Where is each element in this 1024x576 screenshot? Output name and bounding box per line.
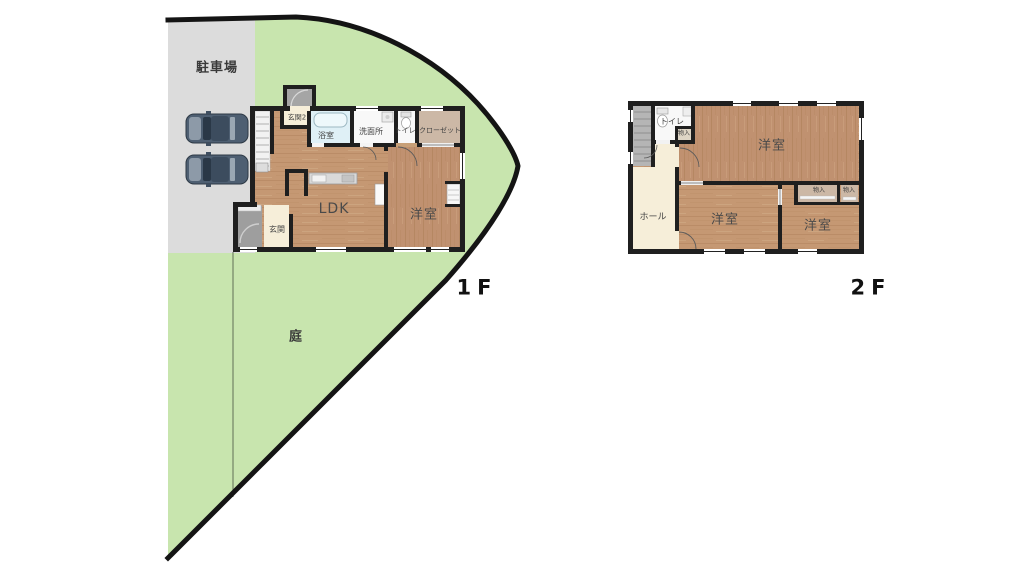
toilet-sink-2f — [683, 107, 692, 116]
genkan-label: 玄関 — [269, 226, 285, 234]
western-room-c-label: 洋室 — [804, 220, 832, 233]
understairs-cabinet — [256, 163, 268, 172]
kitchen-stove — [342, 175, 354, 182]
kitchen-sink — [312, 175, 326, 182]
house-1f — [233, 85, 465, 252]
storage-c-label: 物入 — [843, 188, 855, 194]
bathroom-label: 浴室 — [318, 132, 334, 140]
ldk-niche — [375, 184, 385, 205]
hall-floor-b — [655, 144, 677, 169]
storage-top-label: 物入 — [678, 131, 690, 137]
toilet-tank-1f — [401, 112, 411, 117]
bathtub — [314, 113, 347, 127]
washroom-label: 洗面所 — [359, 128, 383, 136]
toilet-1f-label: トイレ — [395, 128, 416, 135]
floorplan-page: 駐車場 庭 玄関2 浴室 洗面所 トイレ クローゼット LDK 洋室 玄関 トイ… — [0, 0, 1024, 576]
ldk-label: LDK — [319, 202, 350, 216]
car — [186, 111, 248, 146]
stairs-1f — [255, 111, 270, 171]
storage-c-shelf — [843, 197, 856, 200]
toilet-2f-label: トイレ — [660, 118, 684, 126]
western-room-1f-label: 洋室 — [410, 209, 438, 222]
floor1-label: 1F — [457, 278, 498, 299]
toilet-tank-2f — [657, 108, 668, 114]
genkan2-label: 玄関2 — [288, 115, 306, 122]
car — [186, 152, 248, 187]
garden-label: 庭 — [289, 331, 303, 344]
parking-label: 駐車場 — [196, 62, 238, 75]
storage-b-shelf — [800, 196, 835, 199]
closet-label: クローゼット — [419, 128, 461, 135]
western-room-main-label: 洋室 — [758, 140, 786, 153]
floor2-label: 2F — [851, 278, 892, 299]
hall-label: ホール — [639, 214, 666, 223]
hall-floor-a — [633, 167, 677, 249]
storage-b-label: 物入 — [813, 188, 825, 194]
western-room-b-label: 洋室 — [711, 214, 739, 227]
